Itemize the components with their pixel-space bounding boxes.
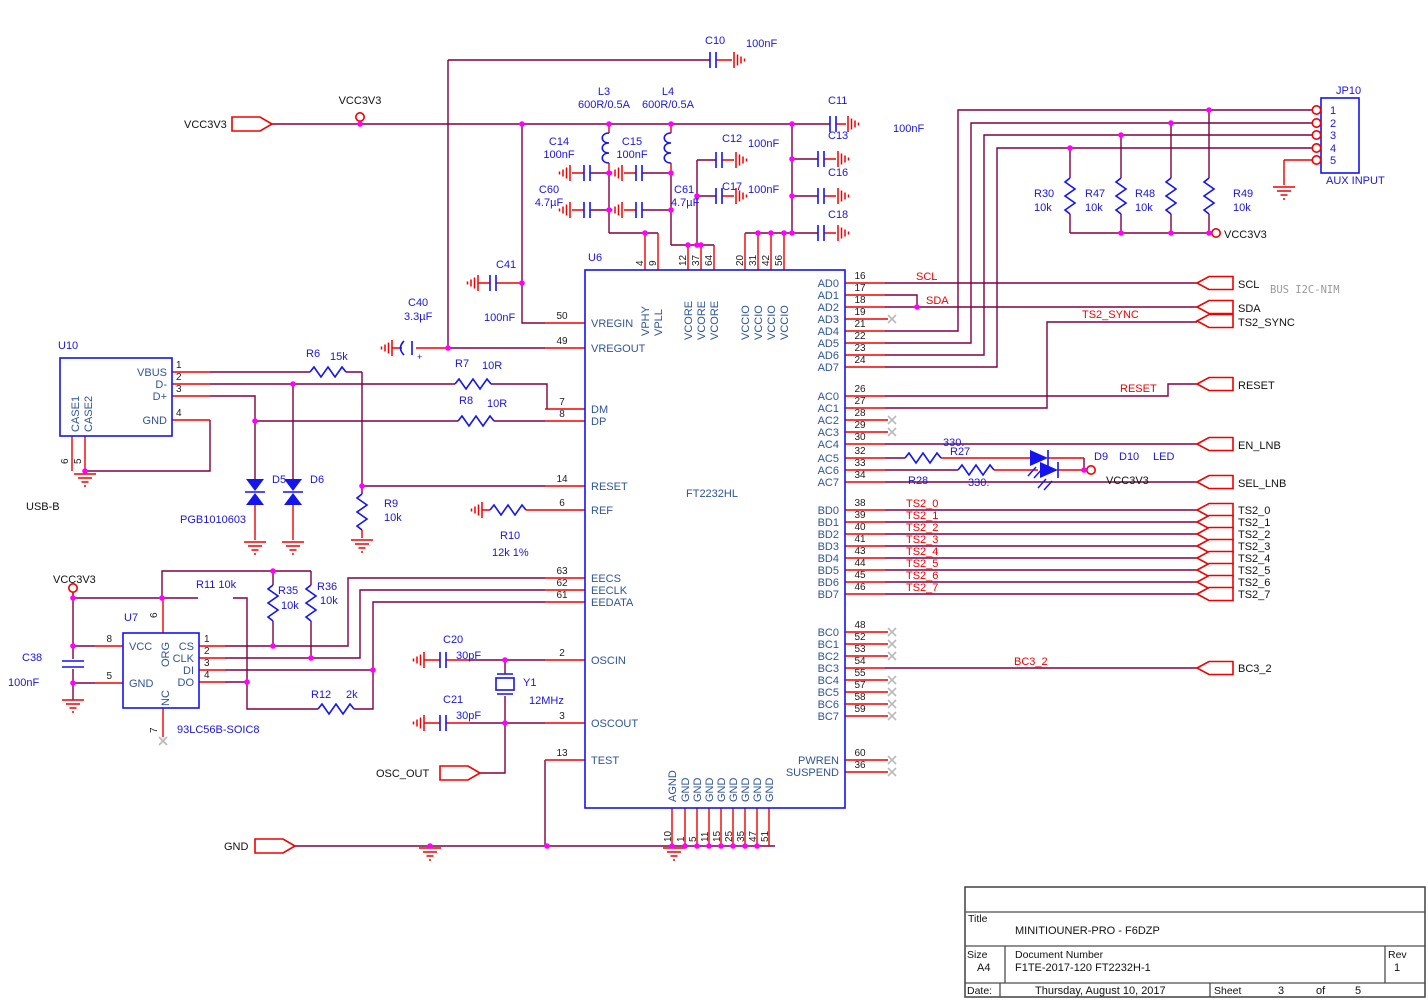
schematic-label: 27 [854,396,866,407]
schematic-label: 10k [1135,202,1153,214]
schematic-label: 2 [176,372,182,383]
port-scl[interactable] [1197,277,1233,290]
schematic-label: 23 [854,343,866,354]
schematic-label: BC3_2 [1238,663,1272,675]
schematic-label: VPLL [653,309,665,336]
schematic-label: RESET [591,481,628,493]
schematic-label: L3 [598,86,610,98]
schematic-sheet: C10100nFL3600R/0.5AL4600R/0.5AC14100nFC1… [0,0,1428,1000]
schematic-label: AD6 [818,350,839,362]
title-block: Title MINITIOUNER-PRO - F6DZP Size A4 Do… [965,887,1425,997]
schematic-label: 12MHz [529,695,564,707]
schematic-label: 10k [1085,202,1103,214]
schematic-label: REF [591,505,613,517]
schematic-label: 10k [1034,202,1052,214]
schematic-label: U7 [124,612,138,624]
schematic-label: 8 [106,634,112,645]
schematic-label: TS2_1 [1238,517,1270,529]
schematic-label: 7 [149,727,160,733]
port-osc-out[interactable] [440,766,480,780]
schematic-label: 39 [854,510,866,521]
schematic-label: CLK [173,653,195,665]
schematic-label: 12k 1% [492,547,529,559]
schematic-label: 63 [556,566,568,577]
schematic-label: EEDATA [591,597,634,609]
schematic-label: 16 [854,271,866,282]
schematic-label: VCORE [709,301,721,340]
schematic-label: C41 [496,259,516,271]
schematic-label: BD2 [818,529,839,541]
schematic-label: VCC3V3 [1106,475,1149,487]
schematic-label: 30pF [456,710,481,722]
schematic-label: C11 [828,95,847,107]
schematic-label: C38 [22,652,42,664]
schematic-label: TS2_2 [906,522,938,534]
port-en-lnb[interactable] [1197,438,1233,451]
schematic-label: SCL [916,271,937,283]
schematic-label: TS2_4 [1238,553,1270,565]
schematic-label: 53 [854,644,866,655]
vcc3v3-symbol [1087,466,1095,474]
schematic-label: 100nF [748,184,779,196]
schematic-label: BC2 [818,651,839,663]
schematic-label: GND [129,678,154,690]
port-ts2-3[interactable] [1197,540,1233,553]
schematic-label: VCC3V3 [53,574,96,586]
schematic-label: C12 [722,133,742,145]
size-value: A4 [977,962,990,974]
schematic-label: BD7 [818,589,839,601]
schematic-label: Y1 [523,677,536,689]
schematic-label: 60 [854,748,866,759]
schematic-label: U10 [58,340,78,352]
schematic-label: 59 [854,704,866,715]
schematic-label: TS2_SYNC [1082,309,1139,321]
schematic-label: R9 [384,498,398,510]
schematic-label: TS2_0 [906,498,938,510]
schematic-label: BC3_2 [1014,656,1048,668]
schematic-label: OSCIN [591,655,626,667]
schematic-label: VCORE [683,301,695,340]
schematic-label: VCORE [696,301,708,340]
schematic-label: 21 [854,319,866,330]
schematic-label: ORG [160,642,172,667]
schematic-label: AD0 [818,278,839,290]
schematic-label: VREGOUT [591,343,646,355]
schematic-label: 12 [678,254,689,266]
schematic-label: AD2 [818,302,839,314]
schematic-label: 100nF [746,38,777,50]
schematic-label: 5 [688,836,699,842]
port-ts2-5[interactable] [1197,564,1233,577]
schematic-label: TS2_7 [906,582,938,594]
schematic-label: TS2_6 [906,570,938,582]
schematic-label: VCC3V3 [339,95,382,107]
tvs-d5-icon [245,479,265,505]
schematic-label: SCL [1238,279,1259,291]
schematic-label: 4 [204,670,210,681]
schematic-label: 33 [854,458,866,469]
schematic-label: R6 [306,348,320,360]
date-value: Thursday, August 10, 2017 [1035,985,1166,997]
schematic-label: 9 [648,260,659,266]
schematic-label: AC4 [818,439,839,451]
schematic-label: 30 [854,432,866,443]
size-label: Size [967,949,988,961]
schematic-label: 2k [346,689,358,701]
schematic-label: TS2_SYNC [1238,317,1295,329]
schematic-label: 51 [760,830,771,842]
schematic-label: R35 [278,585,298,597]
port-reset[interactable] [1197,378,1233,391]
schematic-label: 100nF [748,138,779,150]
schematic-label: 44 [854,558,866,569]
schematic-label: 37 [691,254,702,266]
schematic-label: 10k [384,512,402,524]
schematic-label: BD6 [818,577,839,589]
schematic-label: 34 [854,470,866,481]
crystal-y1[interactable] [496,674,514,694]
schematic-label: 14 [556,474,568,485]
schematic-label: 43 [854,546,866,557]
port-ts2-4[interactable] [1197,552,1233,565]
schematic-label: PGB1010603 [180,514,246,526]
schematic-label: AUX INPUT [1326,175,1385,187]
schematic-label: 46 [854,582,866,593]
schematic-label: TS2_2 [1238,529,1270,541]
schematic-label: 8 [559,409,565,420]
schematic-label: TS2_3 [906,534,938,546]
ports[interactable] [232,117,1233,853]
schematic-label: 18 [854,295,866,306]
schematic-label: L4 [662,86,674,98]
ground-symbols [62,52,1295,860]
schematic-label: 64 [704,254,715,266]
schematic-label: 100nF [8,677,39,689]
schematic-label: 31 [748,254,759,266]
schematic-label: 15k [330,351,348,363]
schematic-label: BC4 [818,675,839,687]
schematic-label: GND [143,415,168,427]
power-symbols [69,106,1321,592]
schematic-label: SUSPEND [786,767,839,779]
schematic-label: 28 [854,408,866,419]
schematic-label: 6 [559,498,565,509]
schematic-label: AC7 [818,477,839,489]
schematic-label: 10R [487,398,507,410]
schematic-label: 6 [149,612,160,618]
rev-label: Rev [1388,949,1407,961]
schematic-label: R49 [1233,188,1253,200]
schematic-label: 54 [854,656,866,667]
schematic-label: GND [716,778,728,803]
schematic-label: 40 [854,522,866,533]
schematic-label: BUS I2C-NIM [1270,284,1340,296]
schematic-label: 48 [854,620,866,631]
led-d10-icon [1038,462,1058,490]
schematic-label: JP10 [1336,85,1361,97]
schematic-label: 15 [712,830,723,842]
schematic-label: 5 [106,671,112,682]
schematic-label: 41 [854,534,866,545]
port-sel-lnb[interactable] [1197,476,1233,489]
schematic-label: C60 [539,184,559,196]
port-gnd[interactable] [255,839,295,853]
schematic-label: D- [155,379,167,391]
schematic-label: BD3 [818,541,839,553]
schematic-label: CASE2 [83,396,95,432]
schematic-label: 36 [854,760,866,771]
port-ts2-2[interactable] [1197,528,1233,541]
schematic-label: GND [680,778,692,803]
schematic-label: 6 [60,458,71,464]
schematic-label: 45 [854,570,866,581]
schematic-label: R7 [455,358,469,370]
schematic-label: 4 [635,260,646,266]
schematic-label: 1 [204,634,210,645]
schematic-label: 26 [854,384,866,395]
schematic-label: SDA [926,295,949,307]
schematic-label: 2 [559,648,565,659]
schematic-label: 600R/0.5A [578,99,631,111]
port-ts2-6[interactable] [1197,576,1233,589]
schematic-label: AD7 [818,362,839,374]
schematic-label: AC1 [818,403,839,415]
schematic-label: FT2232HL [686,488,738,500]
schematic-label: VCC [129,641,152,653]
schematic-label: 2 [204,646,210,657]
schematic-label: 56 [774,254,785,266]
port-vcc3v3[interactable] [232,117,272,131]
schematic-label: BC0 [818,627,839,639]
schematic-label: AC0 [818,391,839,403]
title-label: Title [968,913,988,925]
schematic-label: AC5 [818,453,839,465]
schematic-label: C18 [828,209,848,221]
schematic-label: GND [740,778,752,803]
doc-label: Document Number [1015,949,1104,961]
schematic-title: MINITIOUNER-PRO - F6DZP [1015,925,1160,937]
schematic-label: DP [591,416,606,428]
schematic-label: C61 [674,184,694,196]
schematic-label: BC5 [818,687,839,699]
schematic-label: 4.7µF [535,197,564,209]
schematic-label: 22 [854,331,866,342]
schematic-label: 38 [854,498,866,509]
junction-dots [70,107,1212,849]
schematic-label: VCC3V3 [1224,229,1267,241]
schematic-label: 52 [854,632,866,643]
schematic-label: 32 [854,446,866,457]
schematic-label: R30 [1034,188,1054,200]
schematic-label: VCCIO [779,305,791,340]
port-ts2-7[interactable] [1197,588,1233,601]
schematic-label: 61 [556,590,568,601]
schematic-label: EECS [591,573,621,585]
schematic-label: C17 [722,181,742,193]
schematic-label: BD0 [818,505,839,517]
schematic-label: CASE1 [70,396,82,432]
schematic-label: 10R [482,360,502,372]
port-ts2-1[interactable] [1197,516,1233,529]
schematic-label: GND [704,778,716,803]
schematic-label: TS2_7 [1238,589,1270,601]
schematic-label: TS2_0 [1238,505,1270,517]
schematic-label: OSCOUT [591,718,638,730]
schematic-label: C10 [705,35,725,47]
schematic-label: BD4 [818,553,839,565]
schematic-label: D10 [1119,451,1139,463]
schematic-label: TS2_5 [906,558,938,570]
schematic-label: 20 [735,254,746,266]
schematic-label: OSC_OUT [376,768,429,780]
schematic-label: 100nF [484,312,515,324]
schematic-label: GND [764,778,776,803]
schematic-label: C20 [443,634,463,646]
schematic-label: 3 [204,658,210,669]
schematic-label: 35 [736,830,747,842]
schematic-label: 24 [854,355,866,366]
schematic-label: AC3 [818,427,839,439]
schematic-label: C21 [443,694,463,706]
schematic-label: C16 [828,167,848,179]
schematic-label: VPHY [640,305,652,336]
schematic-label: R47 [1085,188,1105,200]
schematic-label: 330. [968,477,989,489]
schematic-label: 93LC56B-SOIC8 [177,724,260,736]
schematic-label: 3 [176,384,182,395]
schematic-label: USB-B [26,501,60,513]
schematic-label: 100nF [543,149,574,161]
schematic-label: GND [728,778,740,803]
schematic-label: VCCIO [766,305,778,340]
schematic-label: AD3 [818,314,839,326]
schematic-label: C15 [622,136,642,148]
schematic-label: 5 [73,458,84,464]
schematic-label: 10 [663,830,674,842]
schematic-label: 3 [559,711,565,722]
schematic-label: 4 [176,408,182,419]
schematic-label: R48 [1135,188,1155,200]
schematic-label: DO [178,677,195,689]
schematic-label: 47 [748,830,759,842]
schematic-label: + [417,352,422,362]
schematic-label: 10k [1233,202,1251,214]
schematic-label: 3.3µF [404,311,433,323]
schematic-label: VREGIN [591,318,633,330]
vcc3v3-symbol [1212,229,1220,237]
schematic-label: VCCIO [753,305,765,340]
sheet-label: Sheet [1214,985,1242,997]
schematic-label: AD5 [818,338,839,350]
schematic-label: GND [692,778,704,803]
schematic-label: PWREN [798,755,839,767]
schematic-label: BC1 [818,639,839,651]
schematic-label: AD1 [818,290,839,302]
port-bc3-2[interactable] [1197,662,1233,675]
sheet-of: of [1316,985,1326,997]
schematic-label: 30pF [456,650,481,662]
schematic-label: 55 [854,668,866,679]
schematic-label: EECLK [591,585,628,597]
schematic-label: RESET [1120,383,1157,395]
schematic-label: AC6 [818,465,839,477]
schematic-label: 62 [556,578,568,589]
schematic-label: VCC3V3 [184,119,227,131]
schematic-label: 2 [1330,118,1336,130]
schematic-label: AC2 [818,415,839,427]
schematic-label: BC3 [818,663,839,675]
schematic-label: GND [752,778,764,803]
schematic-label: 1 [176,360,182,371]
sheet-total: 5 [1355,985,1361,997]
schematic-label: TEST [591,755,619,767]
schematic-label: D6 [310,474,324,486]
schematic-label: D5 [272,474,286,486]
schematic-label: BC6 [818,699,839,711]
schematic-label: BC7 [818,711,839,723]
schematic-label: 42 [761,254,772,266]
schematic-label: R12 [311,689,331,701]
schematic-label: TS2_6 [1238,577,1270,589]
connector-jp10[interactable] [1321,98,1359,173]
port-sda[interactable] [1197,301,1233,314]
schematic-label: 11 [700,831,711,842]
schematic-label: 50 [556,311,568,322]
schematic-label: 100nF [893,123,924,135]
schematic-label: D9 [1094,451,1108,463]
vcc3v3-symbol [356,113,364,121]
schematic-label: 13 [556,748,568,759]
schematic-label: EN_LNB [1238,440,1281,452]
schematic-label: BD1 [818,517,839,529]
schematic-label: 4.7µF [671,197,700,209]
schematic-label: VBUS [137,367,167,379]
schematic-label: C40 [408,297,428,309]
schematic-label: 19 [854,307,866,318]
schematic-label: AGND [667,770,679,802]
schematic-label: 17 [854,283,866,294]
schematic-label: SDA [1238,303,1261,315]
schematic-label: R28 [908,475,928,487]
schematic-label: AD4 [818,326,839,338]
schematic-label: 58 [854,692,866,703]
schematic-label: R36 [317,581,337,593]
schematic-label: DM [591,404,608,416]
schematic-label: 29 [854,420,866,431]
schematic-label: 1 [676,836,687,842]
schematic-label: DI [183,665,194,677]
schematic-label: 57 [854,680,866,691]
doc-value: F1TE-2017-120 FT2232H-1 [1015,962,1151,974]
schematic-label: C14 [549,136,569,148]
schematic-label: 10k [281,600,299,612]
schematic-label: D+ [153,391,167,403]
schematic-label: TS2_4 [906,546,938,558]
port-ts2-sync[interactable] [1197,315,1233,328]
schematic-label: R8 [459,395,473,407]
date-label: Date: [967,985,992,997]
schematic-label: 1 [1330,105,1336,117]
port-ts2-0[interactable] [1197,504,1233,517]
schematic-label: CS [179,641,194,653]
schematic-label: BD5 [818,565,839,577]
schematic-label: 100nF [616,149,647,161]
schematic-label: 600R/0.5A [642,99,695,111]
schematic-label: R11 10k [196,579,237,591]
diodes [245,450,1058,505]
schematic-label: LED [1153,451,1174,463]
